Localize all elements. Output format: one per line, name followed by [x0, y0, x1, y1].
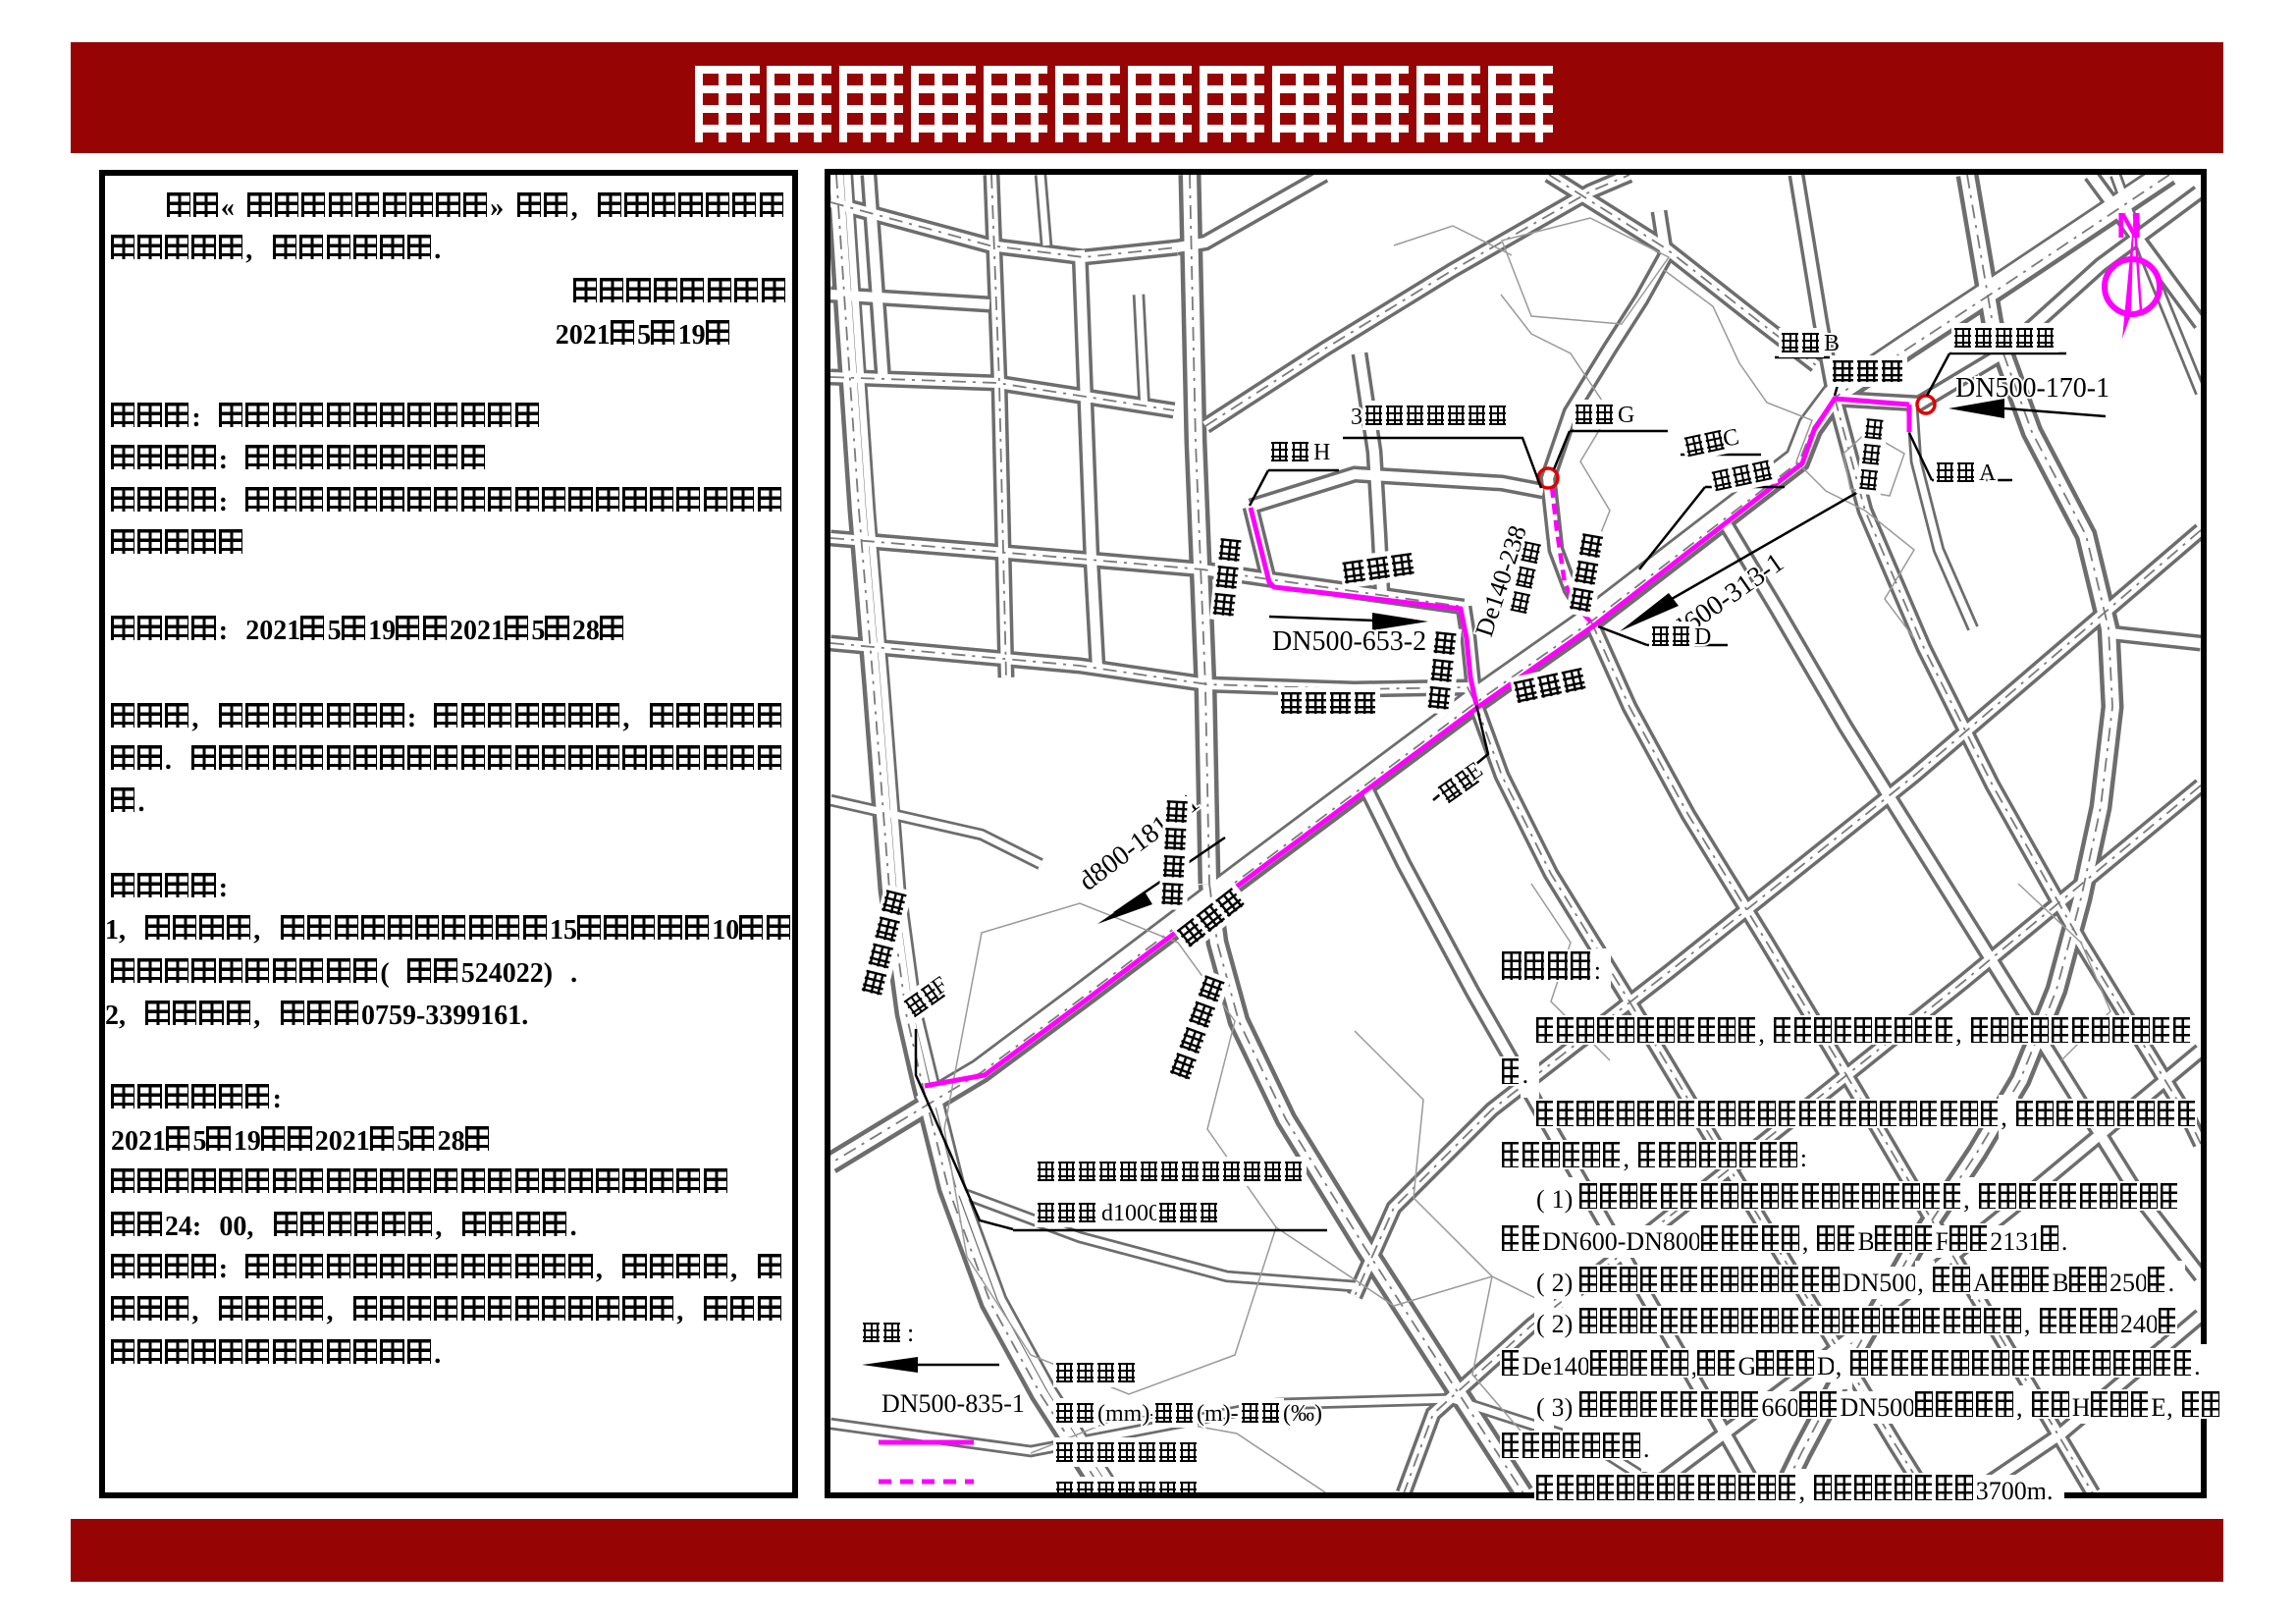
- svg-text:3: 3: [1351, 405, 1362, 430]
- svg-text:G: G: [1618, 403, 1634, 428]
- svg-text:D: D: [1694, 624, 1711, 650]
- svg-text:B: B: [1824, 331, 1840, 356]
- svg-text:A: A: [1979, 460, 1997, 486]
- svg-text:DN500-170-1: DN500-170-1: [1955, 373, 2109, 404]
- svg-text:(‰): (‰): [1283, 1401, 1322, 1427]
- svg-text:H: H: [1313, 440, 1330, 465]
- svg-text:DN500-835-1: DN500-835-1: [881, 1389, 1025, 1418]
- svg-text:DN500-653-2: DN500-653-2: [1272, 626, 1426, 657]
- svg-text:N: N: [2116, 205, 2142, 245]
- svg-text:d1000: d1000: [1101, 1201, 1160, 1226]
- svg-text:(mm)-: (mm)-: [1097, 1401, 1157, 1427]
- svg-text:(m)-: (m)-: [1197, 1401, 1239, 1427]
- svg-text::: :: [907, 1319, 914, 1347]
